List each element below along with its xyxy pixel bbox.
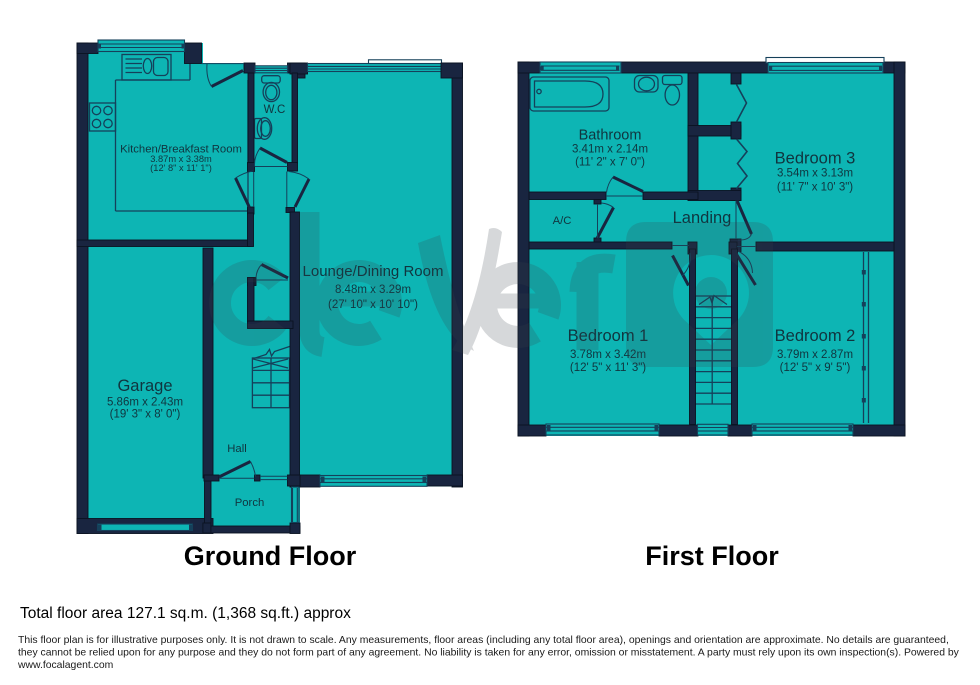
svg-text:Bedroom 3: Bedroom 3	[775, 150, 856, 168]
svg-text:Total floor area 127.1 sq.m. (: Total floor area 127.1 sq.m. (1,368 sq.f…	[20, 605, 351, 622]
svg-text:A/C: A/C	[553, 215, 572, 227]
svg-text:Bathroom: Bathroom	[579, 128, 642, 144]
svg-text:3.79m x 2.87m: 3.79m x 2.87m	[777, 349, 853, 361]
svg-text:Ground Floor: Ground Floor	[184, 541, 357, 571]
svg-text:3.41m x 2.14m: 3.41m x 2.14m	[572, 144, 648, 156]
svg-text:(11' 7" x 10' 3"): (11' 7" x 10' 3")	[777, 182, 853, 194]
svg-text:they cannot be relied upon for: they cannot be relied upon for any purpo…	[18, 648, 960, 659]
svg-text:(19' 3" x 8' 0"): (19' 3" x 8' 0")	[110, 409, 181, 421]
svg-text:5.86m x 2.43m: 5.86m x 2.43m	[107, 397, 183, 409]
svg-text:W.C: W.C	[264, 104, 286, 116]
svg-text:This floor plan is for illustr: This floor plan is for illustrative purp…	[18, 635, 949, 646]
svg-text:www.focalagent.com: www.focalagent.com	[17, 660, 113, 671]
svg-text:(11' 2" x 7' 0"): (11' 2" x 7' 0")	[575, 157, 645, 169]
svg-text:Garage: Garage	[117, 377, 172, 395]
svg-text:(12' 8" x 11' 1"): (12' 8" x 11' 1")	[150, 163, 212, 173]
svg-text:Bedroom 2: Bedroom 2	[775, 327, 856, 345]
svg-text:(12' 5" x 9' 5"): (12' 5" x 9' 5")	[780, 362, 851, 374]
svg-text:Hall: Hall	[227, 443, 246, 455]
svg-text:3.54m x 3.13m: 3.54m x 3.13m	[777, 168, 853, 180]
svg-text:First Floor: First Floor	[645, 541, 779, 571]
svg-text:Porch: Porch	[235, 497, 265, 509]
